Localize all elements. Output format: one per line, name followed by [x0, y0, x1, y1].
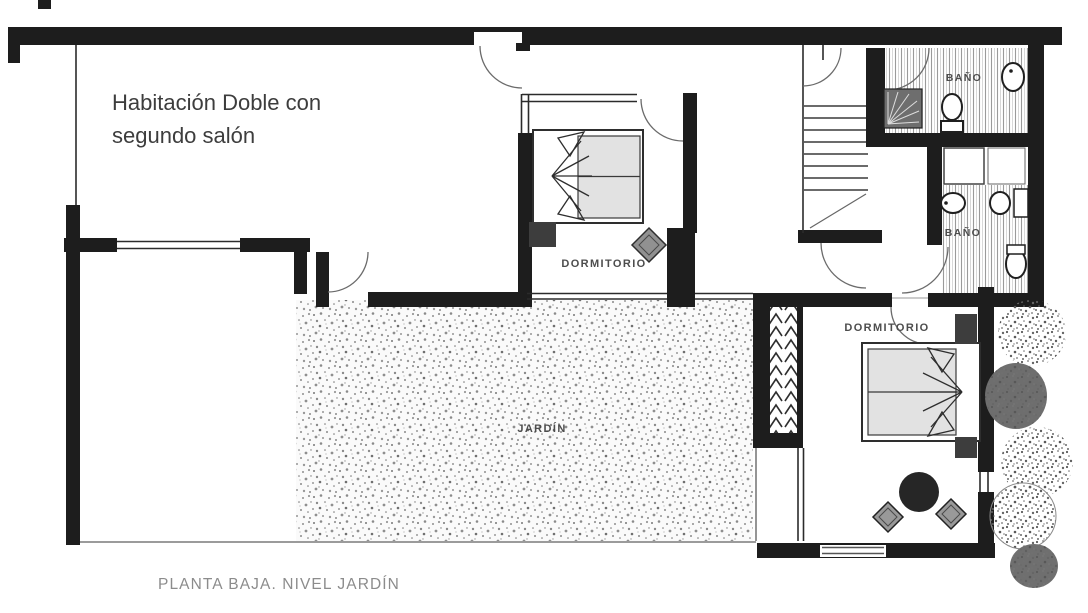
toilet-icon — [941, 94, 963, 132]
annotation-line-2: segundo salón — [112, 123, 255, 148]
door-arc-bedroom-top — [641, 99, 683, 141]
closet-box — [988, 148, 1025, 184]
staircase — [804, 106, 868, 228]
chair-icon — [873, 502, 903, 532]
tree-icon — [998, 300, 1066, 366]
toilet-icon — [1006, 245, 1026, 278]
sink-icon — [941, 193, 965, 213]
trees — [985, 300, 1073, 588]
door-arc-garden — [328, 252, 368, 292]
stool-diamond-icon — [632, 228, 666, 262]
table-icon — [899, 472, 939, 512]
nightstand-icon — [529, 222, 556, 247]
floor-plan-svg: DORMITORIO DORMITORIO BAÑO BAÑO JARDÍN H… — [0, 0, 1088, 613]
door-arc-under-stairs — [821, 243, 866, 288]
bedroom-right-label: DORMITORIO — [844, 322, 929, 334]
wall-bedroom-top-right — [683, 93, 697, 233]
nightstand-icon — [955, 314, 977, 344]
wall-top — [8, 27, 1062, 45]
bed-right-icon — [862, 314, 980, 458]
garden-stipple-texture — [296, 300, 753, 541]
bed-top-icon — [529, 130, 643, 247]
sink-icon — [1002, 63, 1024, 91]
wall-left-outer — [66, 205, 80, 545]
wall-right-outer — [1028, 45, 1044, 307]
shower-icon — [884, 89, 922, 128]
bedroom-top-label: DORMITORIO — [561, 258, 646, 270]
nightstand-icon — [955, 437, 977, 458]
garden-area — [296, 300, 753, 541]
annotation-line-1: Habitación Doble con — [112, 90, 321, 115]
door-arc-main-entry — [480, 46, 522, 88]
door-arc-bathroom-lower — [902, 247, 948, 293]
bathroom-top-label: BAÑO — [946, 71, 983, 84]
stair-direction-line — [810, 194, 866, 228]
terrace-window — [820, 545, 886, 557]
garden-stair-strip — [770, 307, 797, 433]
tree-icon — [990, 483, 1056, 549]
terrace-furniture — [873, 472, 966, 532]
garden-label: JARDÍN — [517, 422, 566, 435]
plan-caption: PLANTA BAJA. NIVEL JARDÍN — [158, 576, 400, 593]
bathroom-lower-label: BAÑO — [945, 226, 982, 239]
chair-icon — [936, 499, 966, 529]
floor-plan-page: DORMITORIO DORMITORIO BAÑO BAÑO JARDÍN H… — [0, 0, 1088, 613]
shower-enclosure — [944, 148, 984, 184]
door-arc-stairs-top — [803, 48, 841, 86]
